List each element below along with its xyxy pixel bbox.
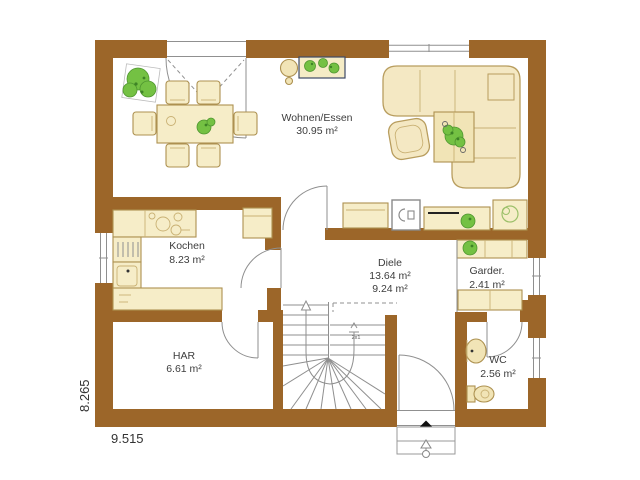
- kitchen-door: [241, 248, 281, 288]
- wall-left-upper: [95, 40, 113, 233]
- wc-door: [487, 322, 522, 357]
- label-wohnen-essen: Wohnen/Essen: [281, 112, 352, 124]
- har-door: [222, 322, 258, 358]
- living-room-door: [283, 186, 327, 230]
- area-diele-1: 13.64 m²: [369, 270, 411, 282]
- tall-cabinet: [243, 208, 272, 238]
- area-wc: 2.56 m²: [480, 368, 516, 380]
- dining-chair: [166, 144, 189, 167]
- wall-top-mid: [246, 40, 389, 58]
- media-cabinet: [343, 203, 388, 228]
- staircase: 2x1: [283, 301, 397, 409]
- area-har: 6.61 m²: [166, 363, 202, 375]
- entrance-point: [423, 451, 430, 458]
- wall-right-upper: [528, 40, 546, 258]
- dining-chair: [234, 112, 257, 135]
- dining-chair: [166, 81, 189, 104]
- armchair: [387, 117, 431, 161]
- corner-shelf: [493, 200, 527, 230]
- wall-bottom-left: [95, 409, 397, 427]
- wall-bottom-right: [455, 409, 546, 427]
- dining-chair: [133, 112, 156, 135]
- wall-wc-left: [455, 312, 467, 409]
- wall-right-mid: [528, 295, 546, 338]
- tv-lowboard: [424, 207, 490, 230]
- wall-stair-right: [385, 315, 397, 409]
- stair-note: 2x1: [352, 335, 361, 341]
- garderobe-bench: [458, 290, 522, 310]
- dimension-bottom: 9.515: [111, 431, 144, 446]
- dining-chair: [197, 81, 220, 104]
- window-right-garderobe: [528, 258, 546, 295]
- floor-plan: 2x1: [0, 0, 640, 480]
- window-right-wc: [528, 338, 546, 378]
- wc-sink: [466, 339, 486, 363]
- label-kochen: Kochen: [169, 240, 205, 252]
- sideboard: [299, 57, 345, 78]
- entrance-door: [397, 355, 455, 427]
- dining-table: [157, 105, 233, 143]
- dishwasher: [113, 237, 141, 262]
- kitchen-sink: [113, 262, 141, 290]
- window-top: [389, 40, 469, 58]
- wardrobe-cabinets: [457, 240, 527, 258]
- kitchen-counter-top: [113, 210, 196, 237]
- wall-har-top: [113, 310, 222, 322]
- dimension-left: 8.265: [77, 379, 92, 412]
- label-wc: WC: [489, 354, 507, 366]
- area-wohnen-essen: 30.95 m²: [296, 125, 338, 137]
- wall-kitchen-vertical-lower: [267, 288, 281, 310]
- dining-chair: [197, 144, 220, 167]
- label-diele: Diele: [378, 257, 402, 269]
- area-kochen: 8.23 m²: [169, 254, 205, 266]
- wall-left-lower: [95, 283, 113, 427]
- window-left-kitchen: [95, 233, 113, 283]
- coffee-table: [434, 112, 474, 162]
- area-diele-2: 9.24 m²: [372, 283, 408, 295]
- wc-toilet: [467, 386, 494, 402]
- entrance-marker: [397, 427, 455, 458]
- area-garderobe: 2.41 m²: [469, 279, 505, 291]
- wall-stair-left: [273, 310, 283, 409]
- floor-plan-canvas: 2x1: [0, 0, 640, 480]
- wood-stove: [392, 200, 420, 230]
- kitchen-counter-bottom: [113, 288, 222, 310]
- floor-lamp: [281, 60, 298, 85]
- living-furniture: [343, 66, 527, 230]
- label-har: HAR: [173, 350, 196, 362]
- corner-plant: [122, 64, 160, 102]
- label-garderobe: Garder.: [469, 265, 504, 277]
- entrance-threshold-arrow: [420, 421, 432, 427]
